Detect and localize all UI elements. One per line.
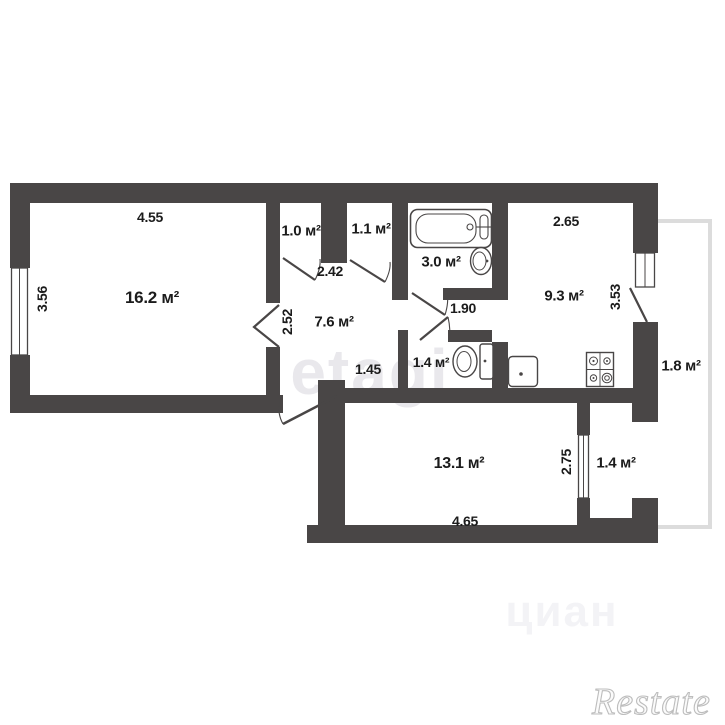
door-bathroom [412,293,448,315]
door-balcony [630,288,647,322]
room-label-living: 16.2 м² [125,288,179,308]
room-label-closet-right: 1.1 м² [351,221,390,238]
door-living [254,305,279,347]
room-label-balcony-bottom: 1.4 м² [596,455,635,472]
dim-label-living-width: 4.55 [137,209,163,225]
restate-logo: Restate [592,680,711,724]
door-wc [420,317,450,341]
kitchen-sink-icon [509,357,538,387]
dim-label-bedroom-width: 4.65 [452,513,478,529]
floor-plan: etagi циан [0,0,725,725]
room-label-hall: 7.6 м² [314,314,353,331]
window-living [12,268,28,355]
room-label-closet-left: 1.0 м² [281,223,320,240]
window-kitchen [636,253,655,287]
room-label-wc: 1.4 м² [413,354,450,370]
dim-label-living-height: 3.56 [34,286,50,312]
door-closet-left [283,258,320,280]
dim-label-bedroom-height: 2.75 [558,449,574,475]
dim-label-kitchen-width: 2.65 [553,213,579,229]
dim-label-hall-bottom: 1.45 [355,361,381,377]
window-bedroom [579,435,589,498]
room-label-bedroom: 13.1 м² [434,455,485,473]
toilet-icon [453,344,493,379]
dim-label-hall-width: 2.42 [317,263,343,279]
dim-label-kitchen-height: 3.53 [607,284,623,310]
room-label-balcony-right: 1.8 м² [661,358,700,375]
door-entrance [279,396,337,424]
dim-label-hall-height: 2.52 [279,309,295,335]
wash-basin-icon [471,248,492,275]
room-label-bathroom: 3.0 м² [421,254,460,271]
dim-label-corridor-width: 1.90 [450,300,476,316]
room-label-kitchen: 9.3 м² [544,288,583,305]
stove-icon [587,353,614,387]
bathtub-icon [411,210,493,248]
door-closet-right [350,260,390,282]
